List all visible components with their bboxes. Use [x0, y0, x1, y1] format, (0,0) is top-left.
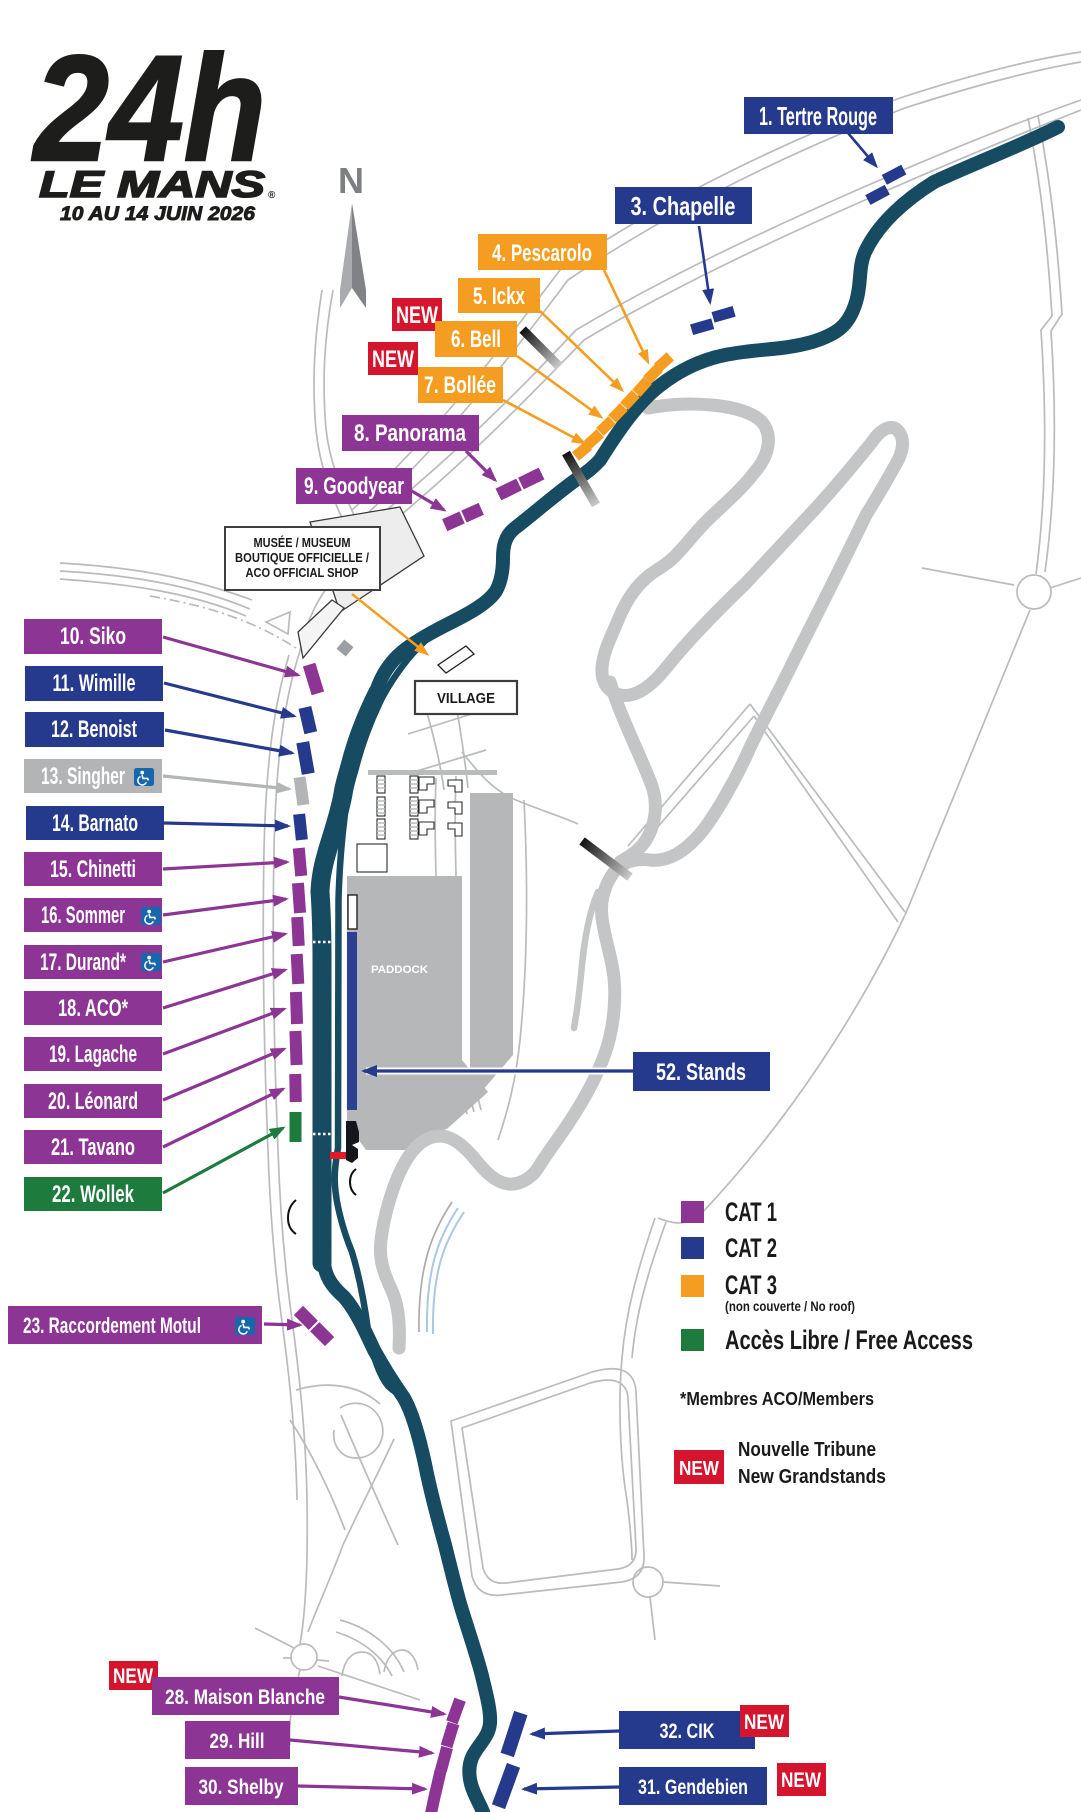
svg-text:23. Raccordement Motul: 23. Raccordement Motul [23, 1313, 201, 1338]
svg-text:CAT 3: CAT 3 [725, 1270, 777, 1300]
svg-text:MUSÉE / MUSEUM: MUSÉE / MUSEUM [254, 535, 351, 550]
svg-text:CAT 1: CAT 1 [725, 1197, 777, 1227]
svg-text:BOUTIQUE OFFICIELLE /: BOUTIQUE OFFICIELLE / [235, 551, 369, 565]
svg-text:(non couverte / No roof): (non couverte / No roof) [725, 1299, 855, 1314]
svg-text:NEW: NEW [679, 1458, 719, 1480]
svg-text:9. Goodyear: 9. Goodyear [304, 473, 404, 500]
svg-text:10 AU 14 JUIN 2026: 10 AU 14 JUIN 2026 [60, 203, 255, 225]
svg-text:52. Stands: 52. Stands [656, 1059, 746, 1086]
svg-text:10. Siko: 10. Siko [60, 623, 126, 650]
svg-text:7. Bollée: 7. Bollée [424, 372, 496, 399]
svg-text:28. Maison Blanche: 28. Maison Blanche [165, 1686, 325, 1709]
svg-text:32. CIK: 32. CIK [660, 1720, 715, 1743]
svg-text:18. ACO*: 18. ACO* [58, 995, 128, 1022]
svg-text:16. Sommer: 16. Sommer [41, 902, 125, 929]
svg-text:15. Chinetti: 15. Chinetti [50, 856, 136, 883]
svg-text:8. Panorama: 8. Panorama [354, 420, 467, 447]
svg-text:NEW: NEW [372, 346, 414, 373]
svg-text:CAT 2: CAT 2 [725, 1233, 777, 1263]
svg-text:N: N [338, 160, 364, 201]
svg-text:®: ® [268, 190, 276, 201]
svg-text:30. Shelby: 30. Shelby [199, 1776, 284, 1799]
svg-text:LE MANS: LE MANS [39, 164, 265, 205]
svg-text:4. Pescarolo: 4. Pescarolo [492, 240, 592, 267]
svg-text:VILLAGE: VILLAGE [437, 690, 495, 707]
svg-text:NEW: NEW [744, 1711, 784, 1734]
svg-text:11. Wimille: 11. Wimille [53, 670, 136, 697]
svg-text:5. Ickx: 5. Ickx [473, 283, 525, 310]
svg-text:19. Lagache: 19. Lagache [49, 1041, 137, 1068]
svg-text:22. Wollek: 22. Wollek [52, 1181, 134, 1208]
svg-text:20. Léonard: 20. Léonard [48, 1088, 138, 1115]
svg-text:17. Durand*: 17. Durand* [40, 949, 126, 976]
svg-text:Accès Libre / Free Access: Accès Libre / Free Access [725, 1325, 973, 1355]
svg-text:21. Tavano: 21. Tavano [51, 1134, 135, 1161]
svg-text:NEW: NEW [113, 1665, 153, 1688]
svg-text:NEW: NEW [781, 1769, 821, 1792]
svg-text:3. Chapelle: 3. Chapelle [631, 191, 736, 221]
svg-text:New Grandstands: New Grandstands [738, 1466, 886, 1488]
svg-text:Nouvelle Tribune: Nouvelle Tribune [738, 1439, 876, 1461]
svg-text:PADDOCK: PADDOCK [371, 964, 428, 976]
svg-text:29. Hill: 29. Hill [210, 1730, 265, 1753]
svg-text:ACO OFFICIAL SHOP: ACO OFFICIAL SHOP [246, 566, 359, 580]
svg-text:1. Tertre Rouge: 1. Tertre Rouge [759, 101, 877, 131]
svg-text:13. Singher: 13. Singher [41, 763, 125, 790]
svg-text:12. Benoist: 12. Benoist [51, 716, 137, 743]
svg-text:6. Bell: 6. Bell [451, 326, 501, 353]
svg-text:*Membres ACO/Members: *Membres ACO/Members [680, 1388, 874, 1409]
svg-text:14. Barnato: 14. Barnato [52, 810, 138, 837]
svg-text:31. Gendebien: 31. Gendebien [638, 1776, 748, 1799]
svg-text:NEW: NEW [396, 302, 438, 329]
